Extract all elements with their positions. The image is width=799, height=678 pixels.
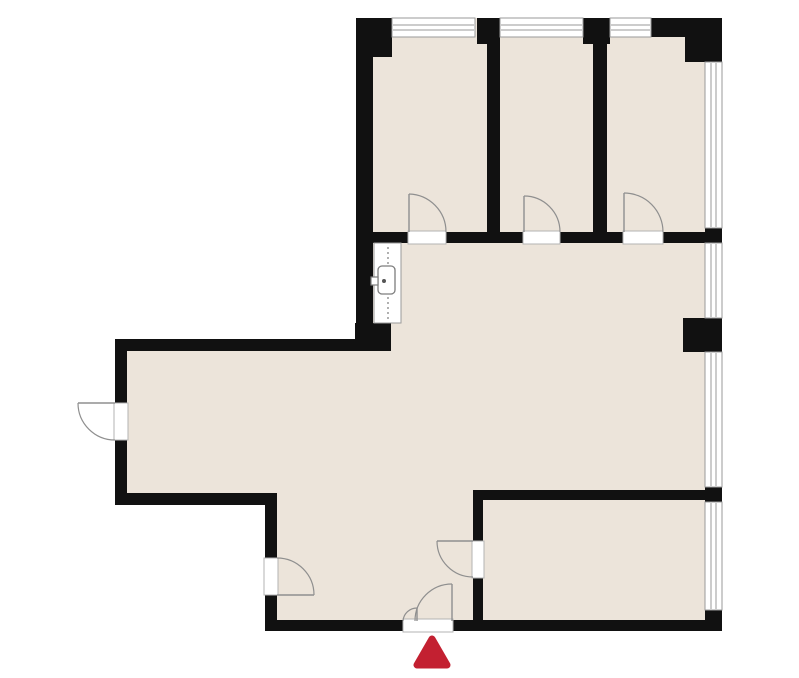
window-top-1: [392, 18, 475, 37]
door-gap-wing-exterior: [114, 403, 128, 440]
window-right-4: [705, 502, 722, 610]
wall-room-divider-2: [593, 35, 607, 243]
window-top-2: [500, 18, 583, 37]
wall-right-pier: [683, 318, 722, 352]
wall-room-divider-1: [487, 35, 500, 243]
wall-corridor-a: [356, 232, 408, 243]
wall-corridor-b: [446, 232, 523, 243]
window-top-3: [610, 18, 651, 37]
window-right-3: [705, 352, 722, 487]
window-right-2: [705, 243, 722, 318]
door-gap-lower-left: [264, 558, 278, 595]
door-wing-exterior-swing-arc: [78, 403, 115, 440]
floor-area: [115, 18, 722, 631]
wall-top-right-corner-block: [685, 18, 722, 62]
wall-corridor-d: [663, 232, 705, 243]
wall-br-room-top: [473, 490, 705, 500]
floor-plan-drawing: [0, 0, 799, 678]
wall-wing-bottom: [115, 493, 277, 505]
washbasin-icon: [378, 266, 395, 294]
door-gap-room-2: [523, 231, 560, 244]
floor-plan-canvas: [0, 0, 799, 678]
door-gap-room-3: [623, 231, 663, 244]
wall-wing-top: [115, 339, 373, 351]
door-gap-entrance: [403, 619, 453, 632]
faucet-handle-icon: [371, 277, 378, 285]
door-gap-br-room: [472, 541, 484, 578]
door-gap-room-1: [408, 231, 446, 244]
wall-right-junction-top: [705, 228, 722, 243]
wall-corridor-c: [560, 232, 623, 243]
entrance-marker: [417, 639, 447, 665]
faucet-dot-icon: [382, 279, 386, 283]
wall-left-upper: [356, 18, 373, 351]
window-right-1: [705, 62, 722, 228]
wall-right-junction-mid: [705, 487, 722, 502]
wall-bottom: [265, 620, 722, 631]
wall-sink-corner-block: [355, 323, 391, 351]
